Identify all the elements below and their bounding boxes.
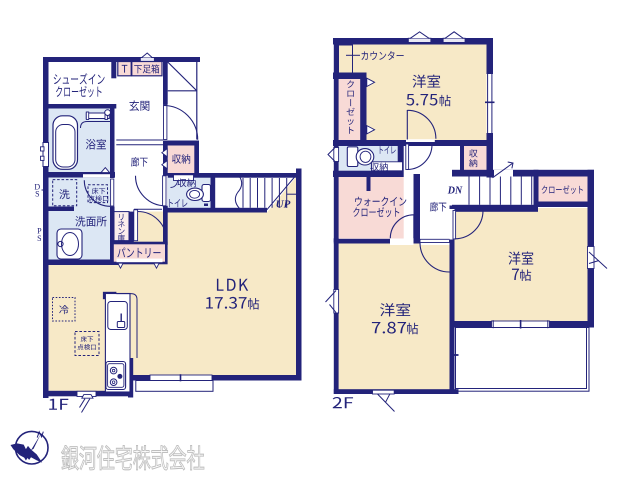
svg-text:DN: DN: [447, 185, 463, 196]
svg-text:UP: UP: [276, 199, 291, 211]
svg-text:S: S: [35, 190, 39, 199]
svg-text:S: S: [37, 234, 41, 243]
